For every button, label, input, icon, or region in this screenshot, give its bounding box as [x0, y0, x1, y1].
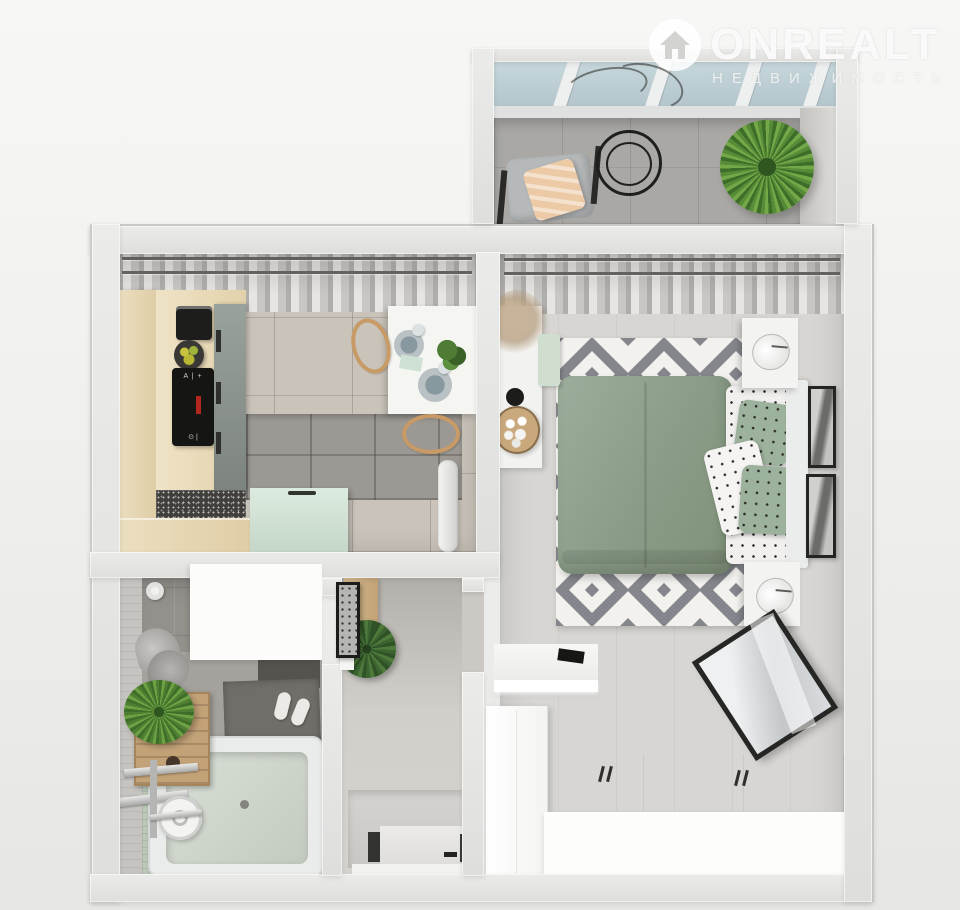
low-wardrobe-front: [544, 812, 844, 876]
curtain-rod: [122, 271, 472, 274]
wall-top: [90, 224, 872, 254]
wall-hall-bedroom-upper: [462, 578, 484, 592]
low-wardrobe-top: [544, 754, 844, 812]
curtain-rod: [504, 258, 840, 261]
framed-picture: [808, 386, 836, 468]
bedroom-doorway: [462, 592, 484, 672]
wardrobe-handle: [742, 770, 749, 786]
cabinet-handle: [216, 432, 221, 454]
lamp-arm: [776, 590, 792, 593]
mint-bench: [538, 334, 560, 386]
wall-bath-hall-lower: [322, 664, 342, 876]
curtain-rod: [504, 272, 840, 275]
curtain-rod: [122, 257, 472, 260]
cooktop-indicator: [196, 396, 201, 414]
cooktop-controls-top: A | +: [172, 373, 214, 380]
bed-sage-duvet: [558, 376, 732, 574]
cabinet-handle: [216, 382, 221, 404]
wall-hall-bedroom-lower: [462, 672, 484, 876]
cup: [412, 324, 424, 336]
bentwood-chair: [402, 414, 460, 454]
house-icon: [648, 18, 702, 72]
wall-right: [844, 224, 874, 902]
cooktop-controls-bottom: ⊙ |: [172, 433, 214, 441]
balcony-wall-left: [472, 48, 494, 224]
faucet-pipe: [150, 760, 157, 838]
chair-frame-rail: [496, 170, 507, 228]
wardrobe-handle: [598, 766, 605, 782]
bedroom-curtains: [500, 252, 844, 314]
fern-plant: [124, 680, 194, 744]
door-handle: [444, 852, 457, 857]
entrance-door: [380, 826, 466, 864]
wire-coffee-table: [596, 130, 662, 196]
headboard: [786, 380, 808, 568]
coffee-machine: [176, 306, 212, 340]
watermark-brand: ONREALT: [710, 20, 940, 70]
wardrobe-handle: [734, 770, 741, 786]
fruit-bowl: [174, 340, 204, 370]
wall-bottom: [90, 874, 872, 902]
serving-tray: [494, 406, 540, 454]
desk-front-edge: [494, 680, 598, 692]
towel-radiator: [438, 460, 458, 552]
wall-kitchen-bedroom: [476, 252, 500, 562]
induction-cooktop: A | + ⊙ |: [172, 368, 214, 446]
lounge-chair: [495, 144, 607, 231]
tall-wardrobe: [486, 706, 548, 882]
lamp-arm: [772, 346, 788, 349]
framed-picture: [806, 474, 836, 558]
stone-countertop-sink: [156, 490, 246, 520]
wardrobe-handle: [606, 766, 613, 782]
framed-print: [336, 582, 360, 658]
tall-gray-cabinet: [214, 304, 246, 490]
table-plant: [432, 334, 470, 374]
black-bowl: [506, 388, 524, 406]
duvet-fold: [562, 550, 728, 564]
watermark-subtitle: НЕДВИЖИМОСТЬ: [712, 70, 948, 87]
mint-cabinet: [250, 488, 348, 552]
wood-base-cabinet: [118, 518, 250, 552]
balcony-window-sill: [494, 106, 836, 118]
palm-plant: [720, 120, 814, 214]
toilet-paper-roll: [146, 582, 164, 600]
wire-table-inner-ring: [606, 142, 652, 186]
cabinet-handle: [216, 330, 221, 352]
tub-drain: [240, 800, 249, 809]
floorplan-render: A | + ⊙ |: [0, 0, 960, 910]
cabinet-handle: [288, 491, 316, 495]
white-utility-block: [190, 564, 322, 660]
wardrobe-seam: [516, 710, 517, 878]
watermark: ONREALT НЕДВИЖИМОСТЬ: [648, 18, 948, 87]
duvet-crease: [644, 382, 647, 568]
wood-cabinet-column: [118, 290, 156, 552]
door-jamb: [368, 832, 380, 862]
